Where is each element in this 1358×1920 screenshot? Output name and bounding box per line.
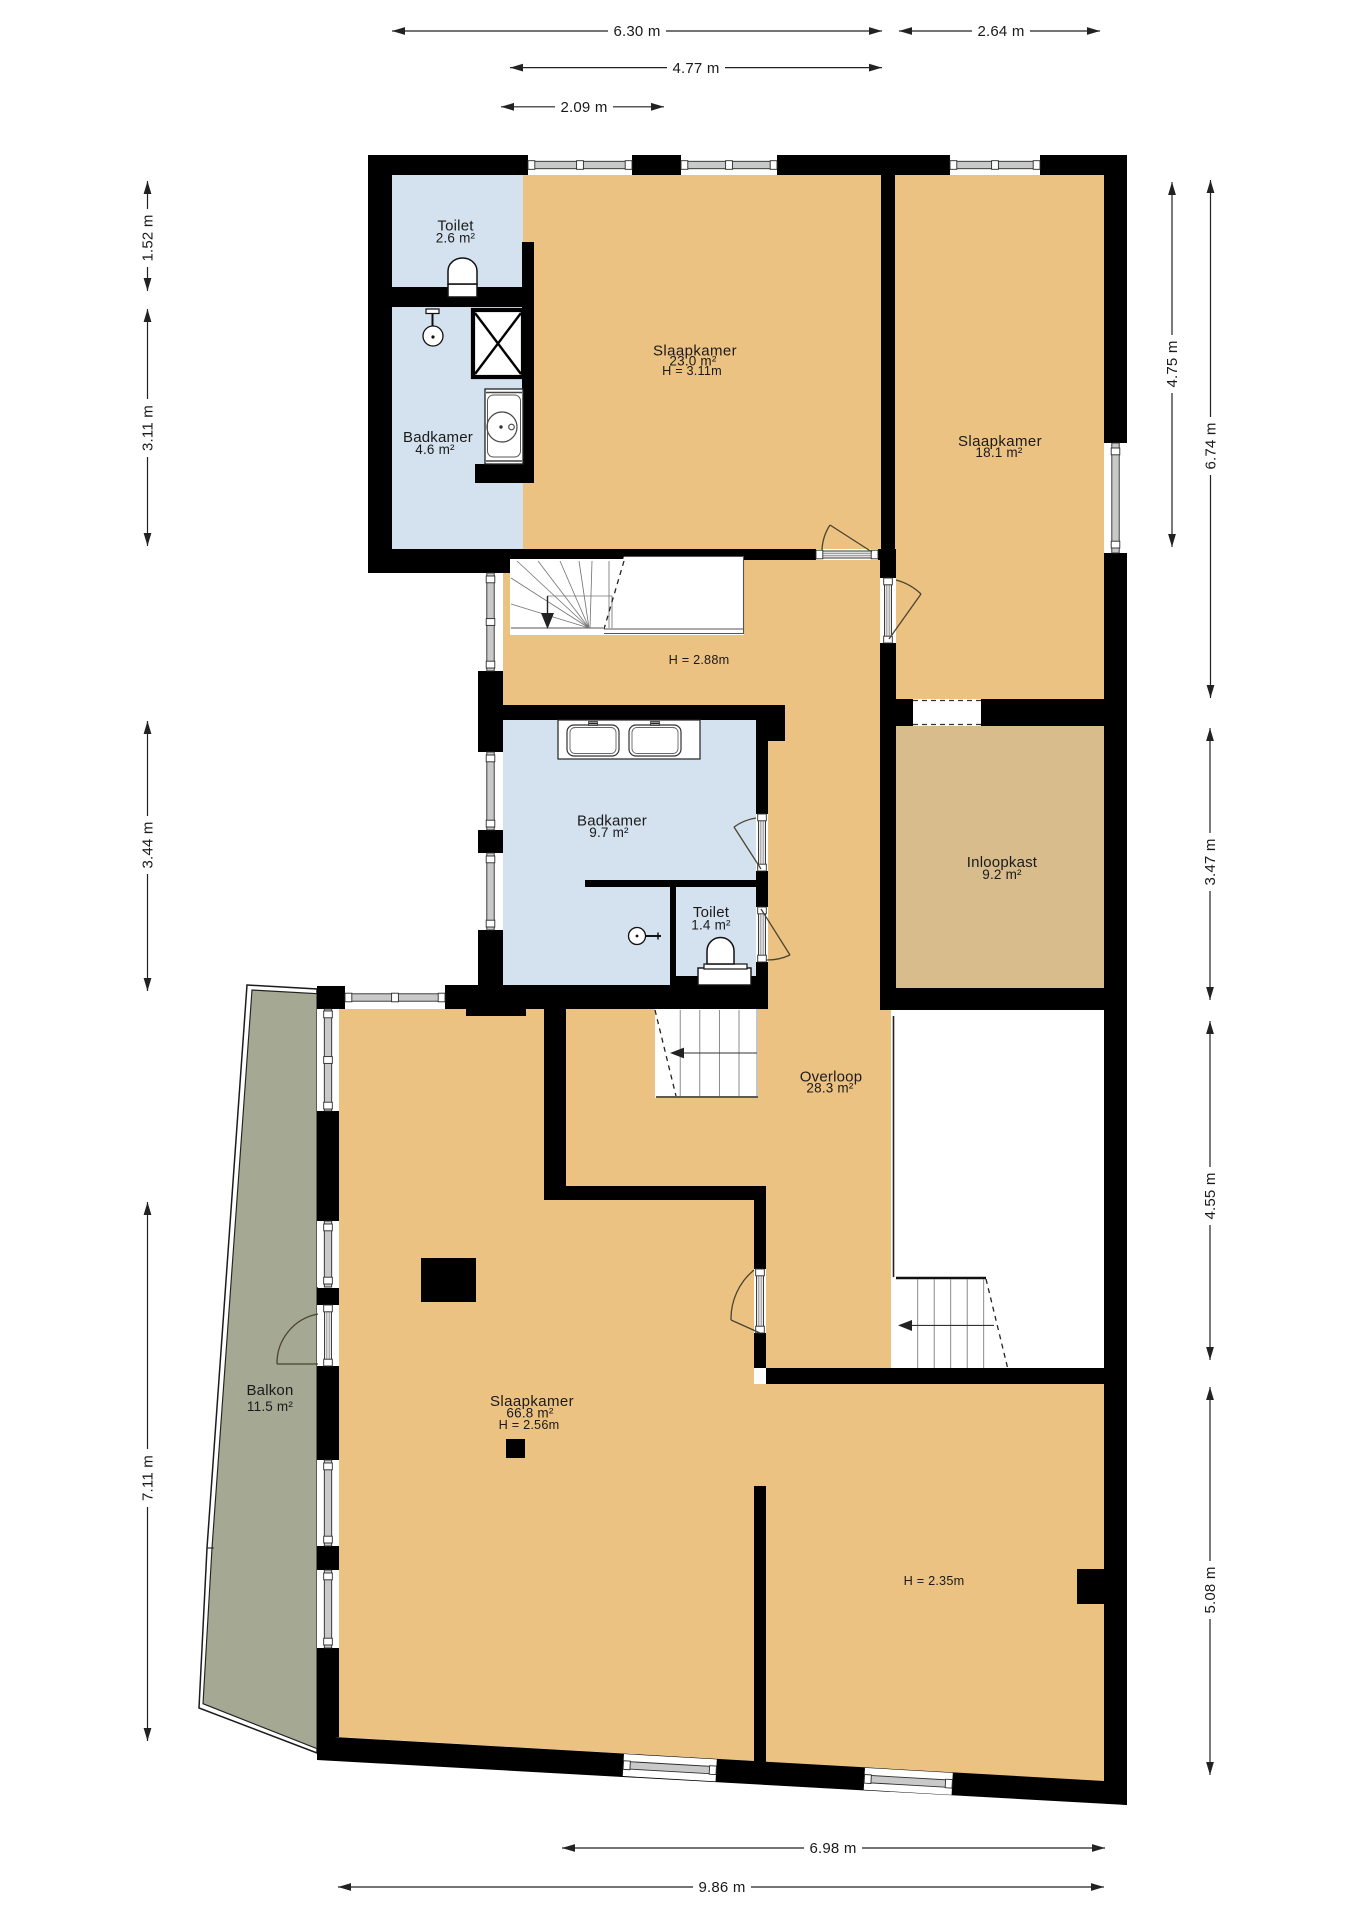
svg-text:2.09 m: 2.09 m xyxy=(560,99,607,116)
svg-text:H = 3.11m: H = 3.11m xyxy=(662,364,722,378)
svg-text:H = 2.35m: H = 2.35m xyxy=(904,1574,965,1588)
svg-text:6.98 m: 6.98 m xyxy=(809,1840,856,1857)
svg-text:9.2 m²: 9.2 m² xyxy=(982,867,1022,882)
svg-text:11.5 m²: 11.5 m² xyxy=(247,1399,293,1414)
svg-text:9.86 m: 9.86 m xyxy=(698,1879,745,1896)
svg-text:Balkon: Balkon xyxy=(246,1382,293,1399)
svg-text:3.11 m: 3.11 m xyxy=(140,405,157,451)
svg-text:5.08 m: 5.08 m xyxy=(1202,1566,1219,1613)
svg-text:28.3 m²: 28.3 m² xyxy=(806,1080,853,1095)
svg-text:4.75 m: 4.75 m xyxy=(1164,340,1181,387)
svg-text:1.4 m²: 1.4 m² xyxy=(691,918,731,933)
svg-text:2.6 m²: 2.6 m² xyxy=(436,230,476,245)
svg-text:4.55 m: 4.55 m xyxy=(1202,1172,1219,1219)
svg-text:2.64 m: 2.64 m xyxy=(977,23,1024,40)
svg-text:7.11 m: 7.11 m xyxy=(140,1455,157,1501)
svg-text:6.30 m: 6.30 m xyxy=(613,23,660,40)
svg-text:9.7 m²: 9.7 m² xyxy=(589,825,629,840)
svg-text:3.47 m: 3.47 m xyxy=(1202,838,1219,885)
svg-text:4.77 m: 4.77 m xyxy=(672,60,719,77)
svg-text:4.6 m²: 4.6 m² xyxy=(415,442,455,457)
svg-text:H = 2.56m: H = 2.56m xyxy=(499,1418,560,1432)
svg-text:6.74 m: 6.74 m xyxy=(1203,422,1220,469)
svg-text:3.44 m: 3.44 m xyxy=(140,821,157,868)
svg-text:H = 2.88m: H = 2.88m xyxy=(669,653,730,667)
svg-text:18.1 m²: 18.1 m² xyxy=(975,445,1022,460)
svg-text:1.52 m: 1.52 m xyxy=(140,214,157,261)
